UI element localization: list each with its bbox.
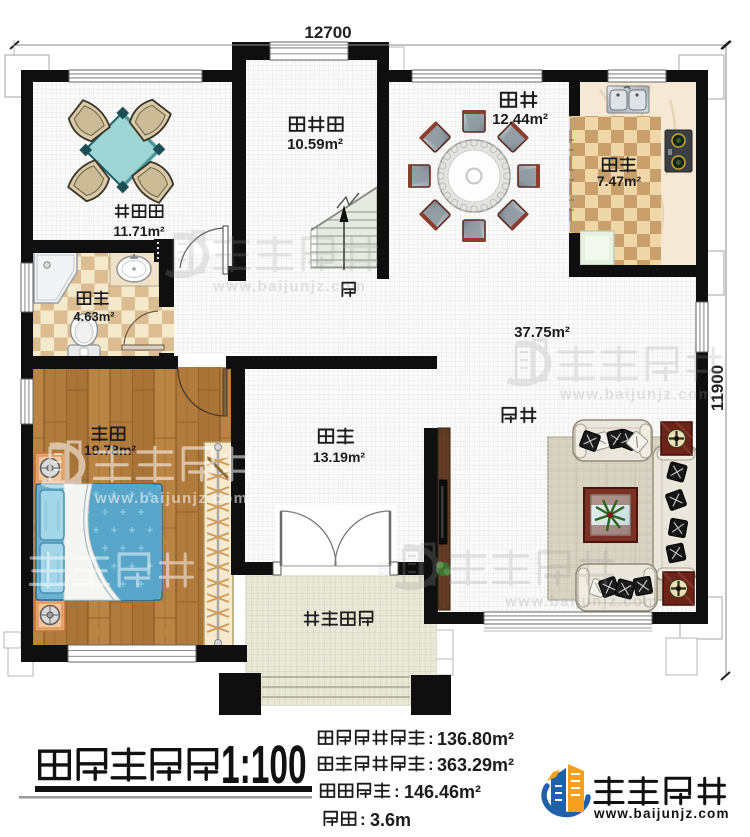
svg-text:37.75m²: 37.75m² <box>514 324 570 341</box>
svg-text:7.47m²: 7.47m² <box>597 173 642 189</box>
svg-text:3.6m: 3.6m <box>370 810 411 830</box>
svg-text:12.44m²: 12.44m² <box>492 111 548 128</box>
svg-text::: : <box>428 729 434 748</box>
svg-text:10.59m²: 10.59m² <box>287 136 343 153</box>
svg-text:4.63m²: 4.63m² <box>73 309 115 324</box>
svg-text::: : <box>360 810 366 829</box>
svg-text::: : <box>394 782 400 801</box>
svg-text:1:100: 1:100 <box>221 734 307 795</box>
svg-text:13.19m²: 13.19m² <box>313 449 365 465</box>
svg-text:363.29m²: 363.29m² <box>437 755 514 775</box>
svg-text::: : <box>428 755 434 774</box>
svg-text:19.78m²: 19.78m² <box>84 442 136 458</box>
svg-text:www.baijunjz.com: www.baijunjz.com <box>504 593 658 610</box>
svg-text:12700: 12700 <box>304 23 351 42</box>
svg-text:www.baijunjz.com: www.baijunjz.com <box>593 806 730 821</box>
svg-text:www.baijunjz.com: www.baijunjz.com <box>212 278 366 295</box>
svg-text:136.80m²: 136.80m² <box>437 729 514 749</box>
svg-text:www.baijunjz.com: www.baijunjz.com <box>94 490 248 507</box>
svg-text:www.baijunjz.com: www.baijunjz.com <box>559 386 713 403</box>
svg-text:146.46m²: 146.46m² <box>404 782 481 802</box>
svg-text:11.71m²: 11.71m² <box>113 223 165 239</box>
